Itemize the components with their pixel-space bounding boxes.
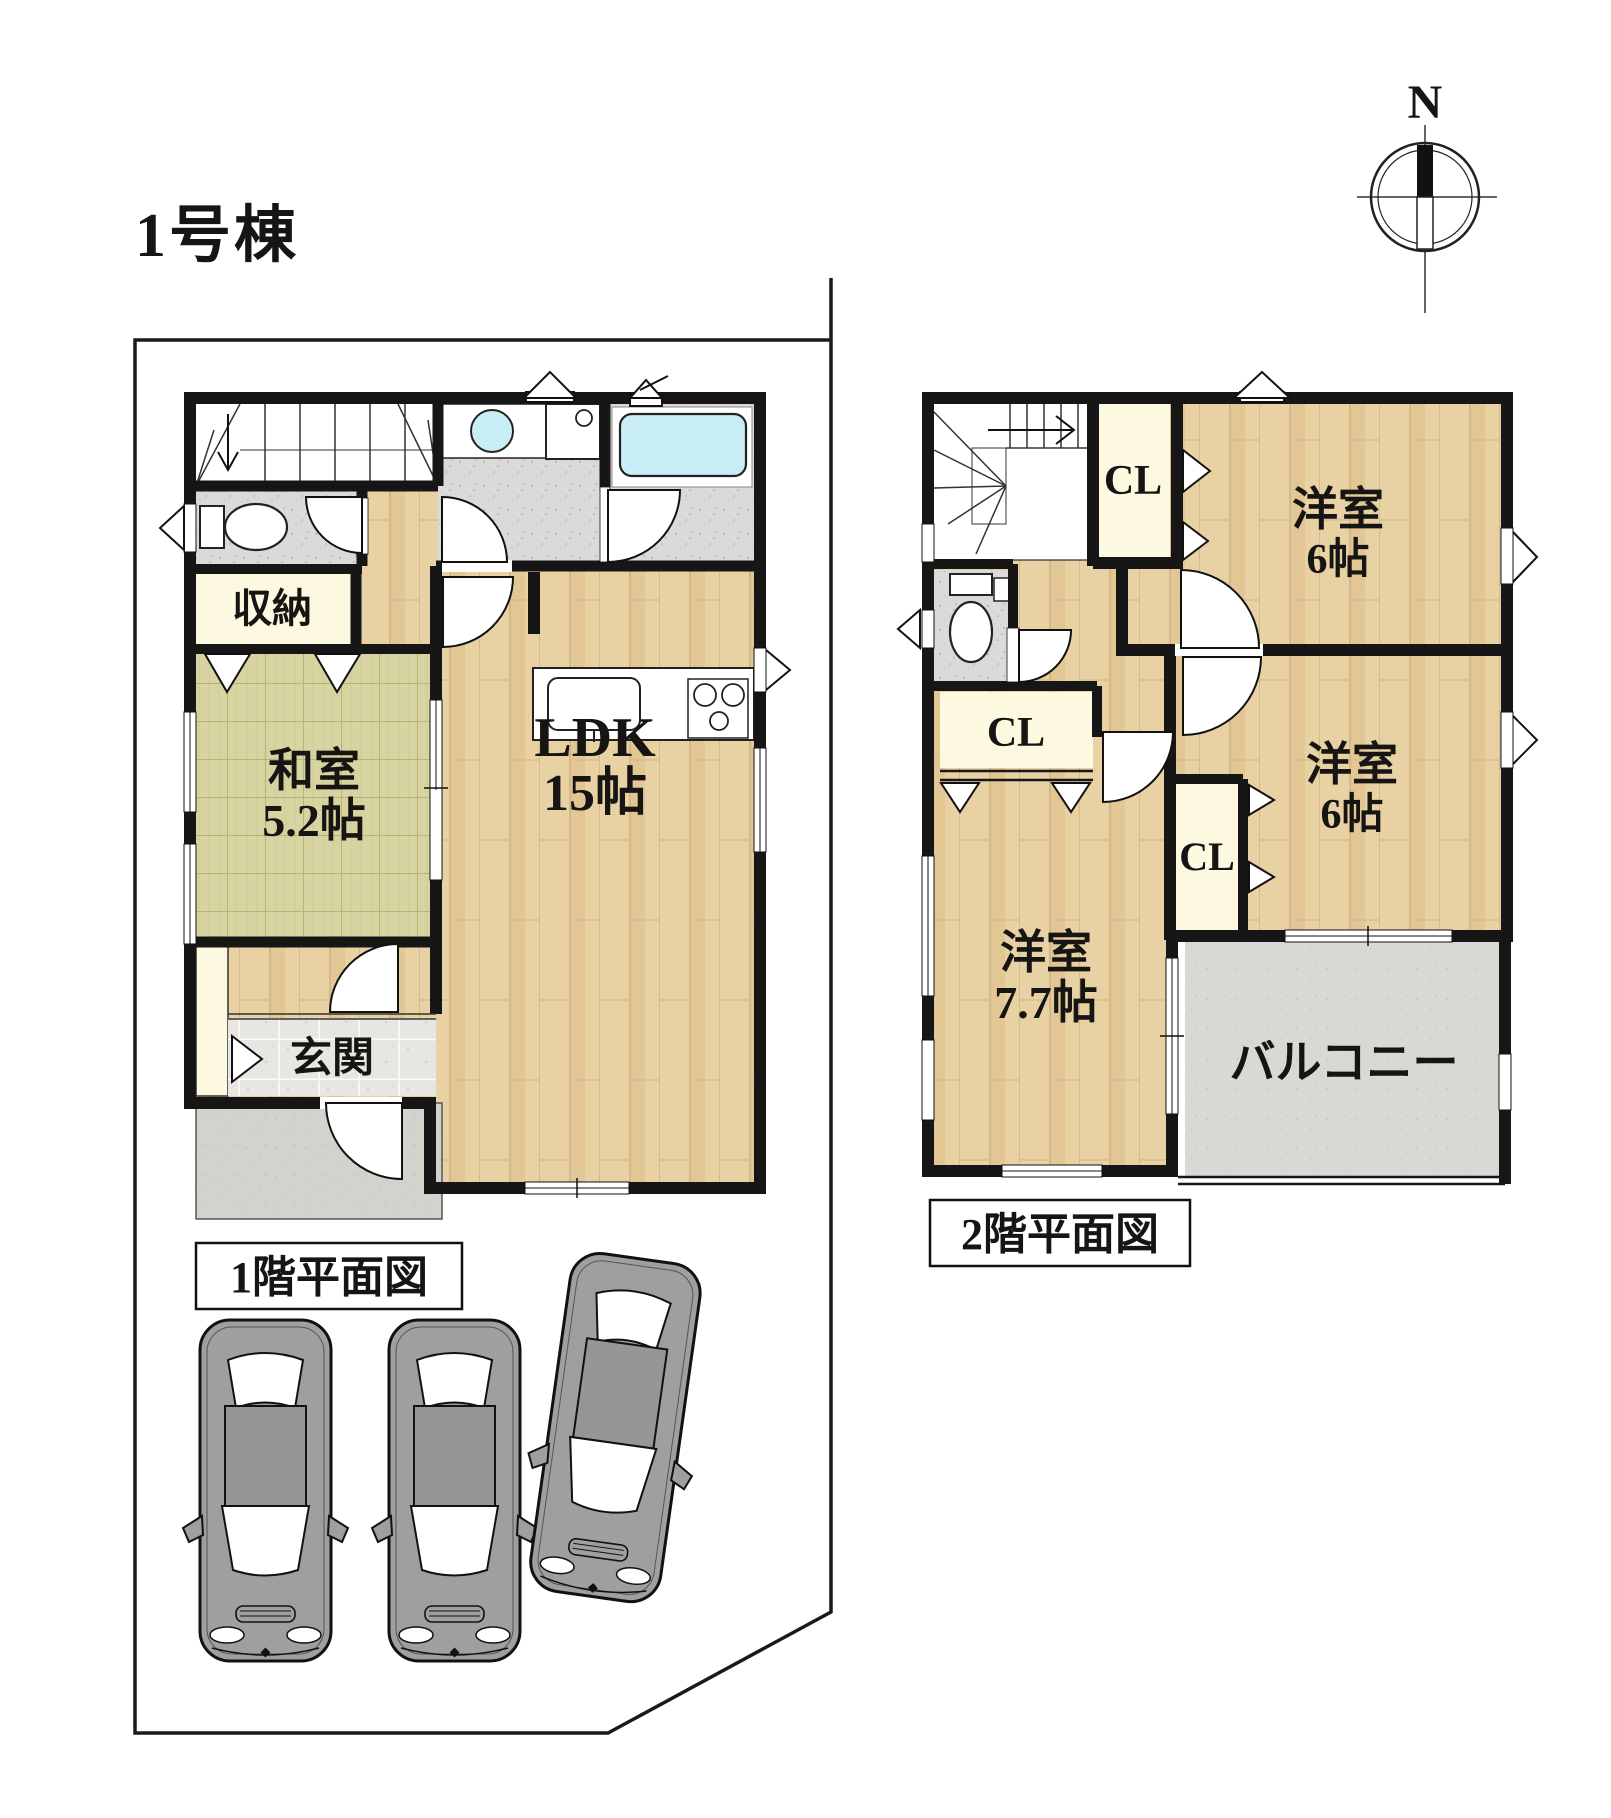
compass: N <box>1357 76 1497 313</box>
label-washitsu-size: 5.2帖 <box>262 795 366 846</box>
floorplan-page: 1号棟 N <box>0 0 1611 1818</box>
label-closet3: CL <box>1179 834 1235 879</box>
page-title: 1号棟 <box>135 202 299 270</box>
floor2-staircase <box>934 404 1090 560</box>
toilet-icon <box>200 504 287 550</box>
floor2-caption: 2階平面図 <box>930 1200 1190 1266</box>
label-balcony: バルコニー <box>1229 1037 1458 1088</box>
floor2-plan: CL CL CL 洋室 6帖 洋室 6帖 洋室 7.7帖 バルコニー 2階平面図 <box>898 372 1537 1266</box>
car-icon-1 <box>183 1320 348 1661</box>
compass-needle-north <box>1417 145 1433 197</box>
stove-icon <box>688 679 748 738</box>
compass-needle-south <box>1417 197 1433 249</box>
label-bedroom3-name: 洋室 <box>1000 927 1092 978</box>
bathtub-icon <box>612 407 752 487</box>
label-closet1: CL <box>1104 458 1162 504</box>
floor1-shoe-cabinet <box>196 942 228 1096</box>
floor1-plan: 収納 和室 5.2帖 LDK 15帖 玄関 1階平面図 <box>160 372 790 1309</box>
floor1-staircase <box>196 404 438 486</box>
label-bedroom3-size: 7.7帖 <box>994 977 1098 1028</box>
label-ldk-size: 15帖 <box>543 764 647 822</box>
label-genkan: 玄関 <box>290 1035 374 1082</box>
floorplan-drawing: 1号棟 N <box>0 0 1611 1818</box>
floor1-caption: 1階平面図 <box>196 1243 462 1309</box>
washer-pan-icon <box>546 404 600 459</box>
car-icon-3 <box>510 1247 721 1608</box>
label-closet2: CL <box>987 710 1045 756</box>
label-storage: 収納 <box>232 586 312 631</box>
label-ldk-name: LDK <box>534 707 656 769</box>
floor2-caption-text: 2階平面図 <box>961 1210 1159 1259</box>
floor1-entrance-porch <box>196 1103 442 1219</box>
label-bedroom2-name: 洋室 <box>1306 739 1398 790</box>
label-bedroom1-name: 洋室 <box>1292 484 1384 535</box>
label-bedroom2-size: 6帖 <box>1320 791 1383 838</box>
floor2-roof-vent-icon <box>1234 372 1290 402</box>
label-bedroom1-size: 6帖 <box>1306 536 1369 583</box>
car-icon-2 <box>372 1320 537 1661</box>
compass-north-label: N <box>1408 76 1443 129</box>
floor1-caption-text: 1階平面図 <box>230 1253 428 1302</box>
label-washitsu-name: 和室 <box>268 745 360 796</box>
